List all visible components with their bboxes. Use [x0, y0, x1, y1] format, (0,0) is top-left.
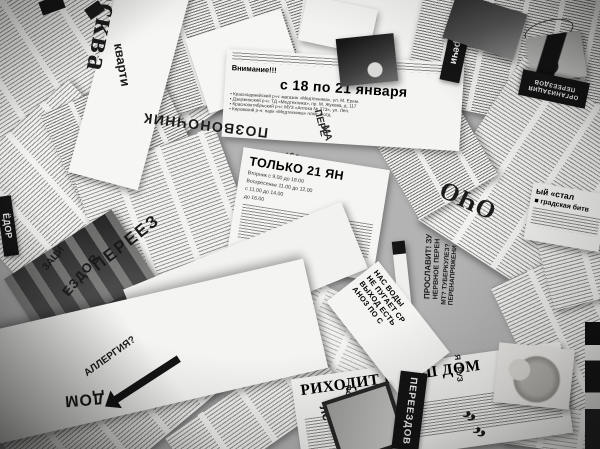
right-edge-strip [585, 322, 600, 449]
headline-dom: ДОМ [63, 388, 104, 408]
fragment-gruz: Я ГРУЗ [452, 354, 463, 382]
headline-pereezdov-vertical: ПЕРЕЕЗДОВ [400, 377, 419, 446]
rotated-headline-tuberkulez: МТ? ТУБЕРКУЛЕЗ? ПЕРЕНАПРЯЖЕНИ [441, 243, 459, 305]
photo-dark-object [336, 33, 399, 87]
newspaper-collage-photo: Москва кварти Внимание!!! с 18 по 21 янв… [0, 0, 600, 449]
photo-teapot-drawing [493, 342, 575, 410]
rotated-headline-proslavit: ПРОСЛАВИТ! ЗУ НЕРВНОЕ ПЕРЕН [423, 234, 442, 300]
fragment-dor: ЁДОР [1, 213, 14, 240]
